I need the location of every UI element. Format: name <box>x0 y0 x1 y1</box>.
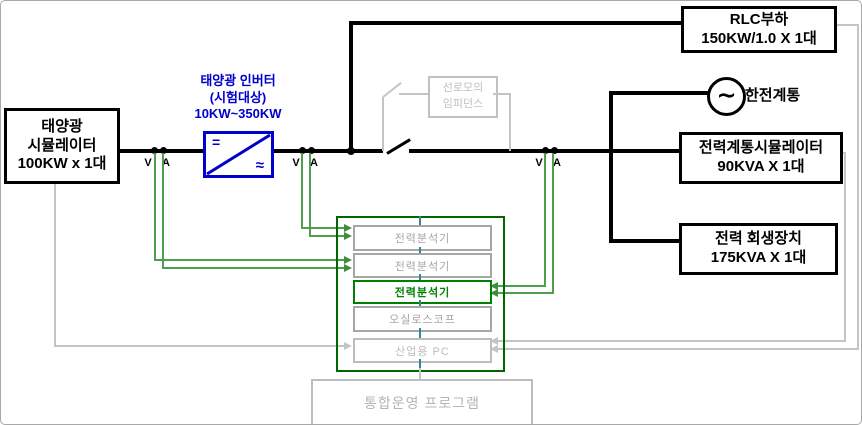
bypass-switch-icon <box>382 82 401 98</box>
bypass-drop-line <box>509 93 511 151</box>
grid-simulator-label-2: 90KVA X 1대 <box>717 158 804 177</box>
instrument-connector <box>419 300 421 306</box>
instrument-connector <box>419 359 421 368</box>
power-analyzer-1-box: 전력분석기 <box>353 225 492 251</box>
inverter-title: 태양광 인버터 <box>179 73 297 90</box>
right-bus-vertical-line <box>609 91 613 243</box>
regenerator-label-2: 175KVA X 1대 <box>711 249 807 268</box>
oscilloscope-box: 오실로스코프 <box>353 306 492 332</box>
dc-symbol-icon: = <box>212 134 220 150</box>
control-line <box>54 345 344 347</box>
measurement-line <box>498 292 554 294</box>
bypass-top-line <box>399 93 429 95</box>
rlc-branch-horizontal-line <box>349 21 681 25</box>
regenerator-label-1: 전력 회생장치 <box>715 230 802 249</box>
measurement-line <box>301 153 303 229</box>
inverter-subtitle: (시험대상) <box>179 90 297 107</box>
inverter-box: = ≈ <box>203 131 274 178</box>
power-analyzer-2-box: 전력분석기 <box>353 253 492 278</box>
measurement-line <box>309 153 311 237</box>
grid-simulator-label-1: 전력계통시뮬레이터 <box>699 139 823 158</box>
grid-simulator-box: 전력계통시뮬레이터 90KVA X 1대 <box>679 132 843 184</box>
instrument-connector <box>419 216 421 225</box>
measurement-line <box>544 153 546 287</box>
measurement-line <box>498 285 546 287</box>
rlc-load-label-1: RLC부하 <box>730 11 788 30</box>
inverter-range: 10KW~350KW <box>179 106 297 123</box>
control-line <box>498 340 846 342</box>
inverter-label: 태양광 인버터 (시험대상) 10KW~350KW <box>179 73 297 123</box>
line-impedance-label-2: 임피던스 <box>443 97 483 113</box>
regenerator-box: 전력 회생장치 175KVA X 1대 <box>679 223 838 275</box>
sine-wave-glyph: ∼ <box>716 81 736 110</box>
instrument-connector <box>419 274 421 280</box>
power-analyzer-3-label: 전력분석기 <box>395 284 451 300</box>
control-line <box>857 24 859 350</box>
measurement-line <box>162 267 344 269</box>
regenerator-branch-line <box>609 239 681 243</box>
industrial-pc-box: 산업용 PC <box>353 338 492 363</box>
junction-dot <box>347 147 355 155</box>
power-analyzer-1-label: 전력분석기 <box>395 230 451 246</box>
meter-v-label: V <box>142 157 154 169</box>
instrument-connector <box>419 328 421 338</box>
line-impedance-box: 선로모의 임피던스 <box>428 76 498 118</box>
kepco-grid-label: 한전계통 <box>745 84 800 105</box>
integrated-program-label: 통합운영 프로그램 <box>364 393 480 413</box>
measurement-line <box>552 153 554 294</box>
rlc-branch-vertical-line <box>349 21 353 153</box>
control-line <box>54 178 56 347</box>
oscilloscope-label: 오실로스코프 <box>389 311 456 327</box>
pv-simulator-label-2: 시뮬레이터 <box>27 137 96 156</box>
ac-source-icon: ∼ <box>707 77 746 116</box>
power-analyzer-3-box: 전력분석기 <box>353 280 492 304</box>
control-line <box>844 152 846 342</box>
pv-simulator-box: 태양광 시뮬레이터 100KW x 1대 <box>4 108 120 184</box>
power-analyzer-2-label: 전력분석기 <box>395 258 451 274</box>
measurement-line <box>154 153 156 260</box>
measurement-line <box>162 153 164 268</box>
integrated-program-box: 통합운영 프로그램 <box>311 379 533 425</box>
measurement-line <box>154 259 344 261</box>
ac-symbol-icon: ≈ <box>256 157 264 174</box>
grid-branch-line <box>609 91 709 95</box>
bypass-riser-line <box>382 97 384 151</box>
industrial-pc-label: 산업용 PC <box>395 343 450 359</box>
line-impedance-label-1: 선로모의 <box>443 81 483 97</box>
main-switch-icon <box>386 138 411 154</box>
rlc-load-box: RLC부하 150KW/1.0 X 1대 <box>681 6 837 53</box>
instrument-connector <box>419 247 421 253</box>
power-test-diagram: V A V A V A 선로모의 임피던스 태양광 시뮬레 <box>0 0 862 425</box>
rlc-load-label-2: 150KW/1.0 X 1대 <box>701 30 817 49</box>
control-line <box>498 348 859 350</box>
program-connector <box>419 368 421 379</box>
pv-simulator-label-3: 100KW x 1대 <box>18 155 107 174</box>
pv-simulator-label-1: 태양광 <box>41 118 82 137</box>
